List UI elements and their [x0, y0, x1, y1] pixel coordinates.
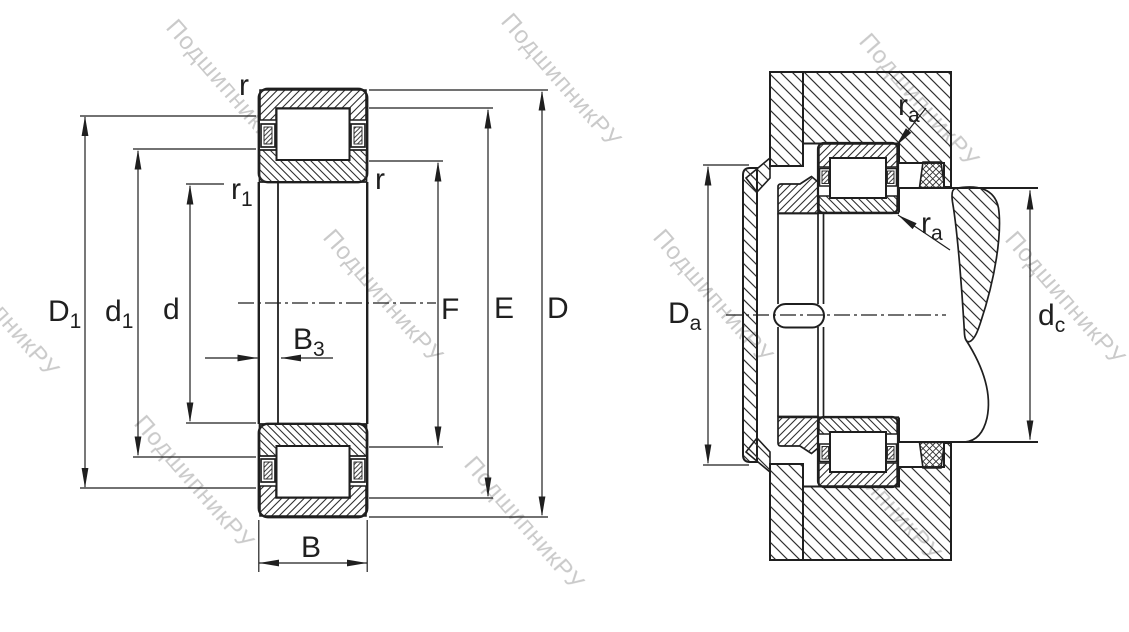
bearing-technical-drawing-page: ПодшипникРУ ПодшипникРУ ПодшипникРУ Подш…	[0, 0, 1129, 632]
label-r-top: r	[239, 69, 249, 102]
label-E: E	[494, 292, 514, 325]
label-d: d	[163, 293, 180, 326]
label-D1: D1	[48, 295, 81, 333]
angle-ring-bottom	[778, 417, 818, 454]
label-D: D	[547, 292, 569, 325]
roller-bottom	[277, 446, 350, 498]
watermark-text: ПодшипникРУ	[317, 224, 448, 369]
shaft-break-top	[952, 187, 999, 342]
label-B3: B3	[293, 323, 325, 361]
watermark-text: ПодшипникРУ	[999, 226, 1129, 371]
label-r1: r1	[231, 173, 253, 211]
watermark-text: ПодшипникРУ	[495, 8, 626, 153]
angle-ring-top	[778, 177, 818, 214]
label-Da: Da	[668, 297, 702, 335]
roller-top	[277, 109, 350, 161]
seal-top	[920, 162, 945, 188]
watermark-text: ПодшипникРУ	[458, 451, 589, 596]
mounted-bearing-bottom	[818, 417, 898, 487]
seal-bottom	[920, 443, 945, 469]
label-d1: d1	[105, 295, 133, 333]
mounted-bearing-top	[818, 143, 898, 213]
label-r-right: r	[375, 163, 385, 196]
label-F: F	[441, 293, 459, 326]
shaft-break-curve	[965, 340, 988, 442]
label-ra-bottom: ra	[921, 207, 943, 245]
bearing-drawing-canvas: ПодшипникРУ ПодшипникРУ ПодшипникРУ Подш…	[0, 0, 1129, 632]
label-B: B	[301, 531, 321, 564]
shaft-center-feature	[774, 304, 824, 328]
watermark-text: ПодшипникРУ	[128, 410, 259, 555]
